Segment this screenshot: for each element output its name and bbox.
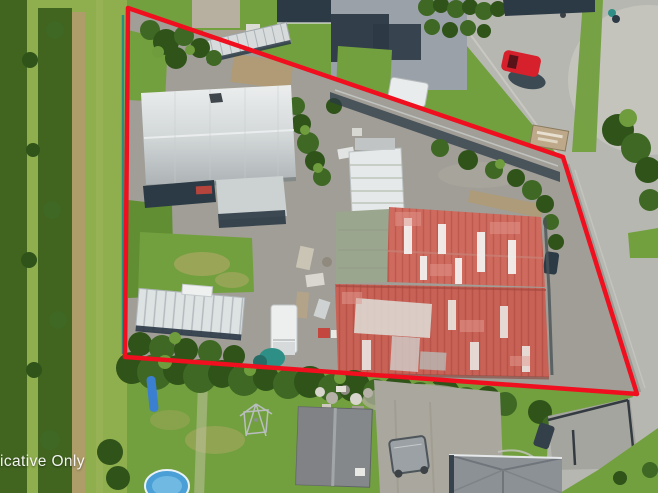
roof-patch xyxy=(354,298,432,338)
swimming-pool xyxy=(145,470,189,493)
aerial-scene xyxy=(0,0,658,493)
roof-vent xyxy=(209,93,223,103)
dark-roof-house xyxy=(277,0,333,23)
greenhouse-vent xyxy=(182,284,213,297)
green-roof-section xyxy=(336,209,389,284)
watermark-text: icative Only xyxy=(0,453,85,471)
boat-trailer xyxy=(389,436,430,479)
aerial-photo: icative Only xyxy=(0,0,658,493)
orchard-field xyxy=(0,0,130,493)
garden-beds xyxy=(192,0,240,28)
hip-roof-house xyxy=(449,455,562,493)
white-truck xyxy=(271,305,297,355)
grass-verge xyxy=(628,228,658,258)
